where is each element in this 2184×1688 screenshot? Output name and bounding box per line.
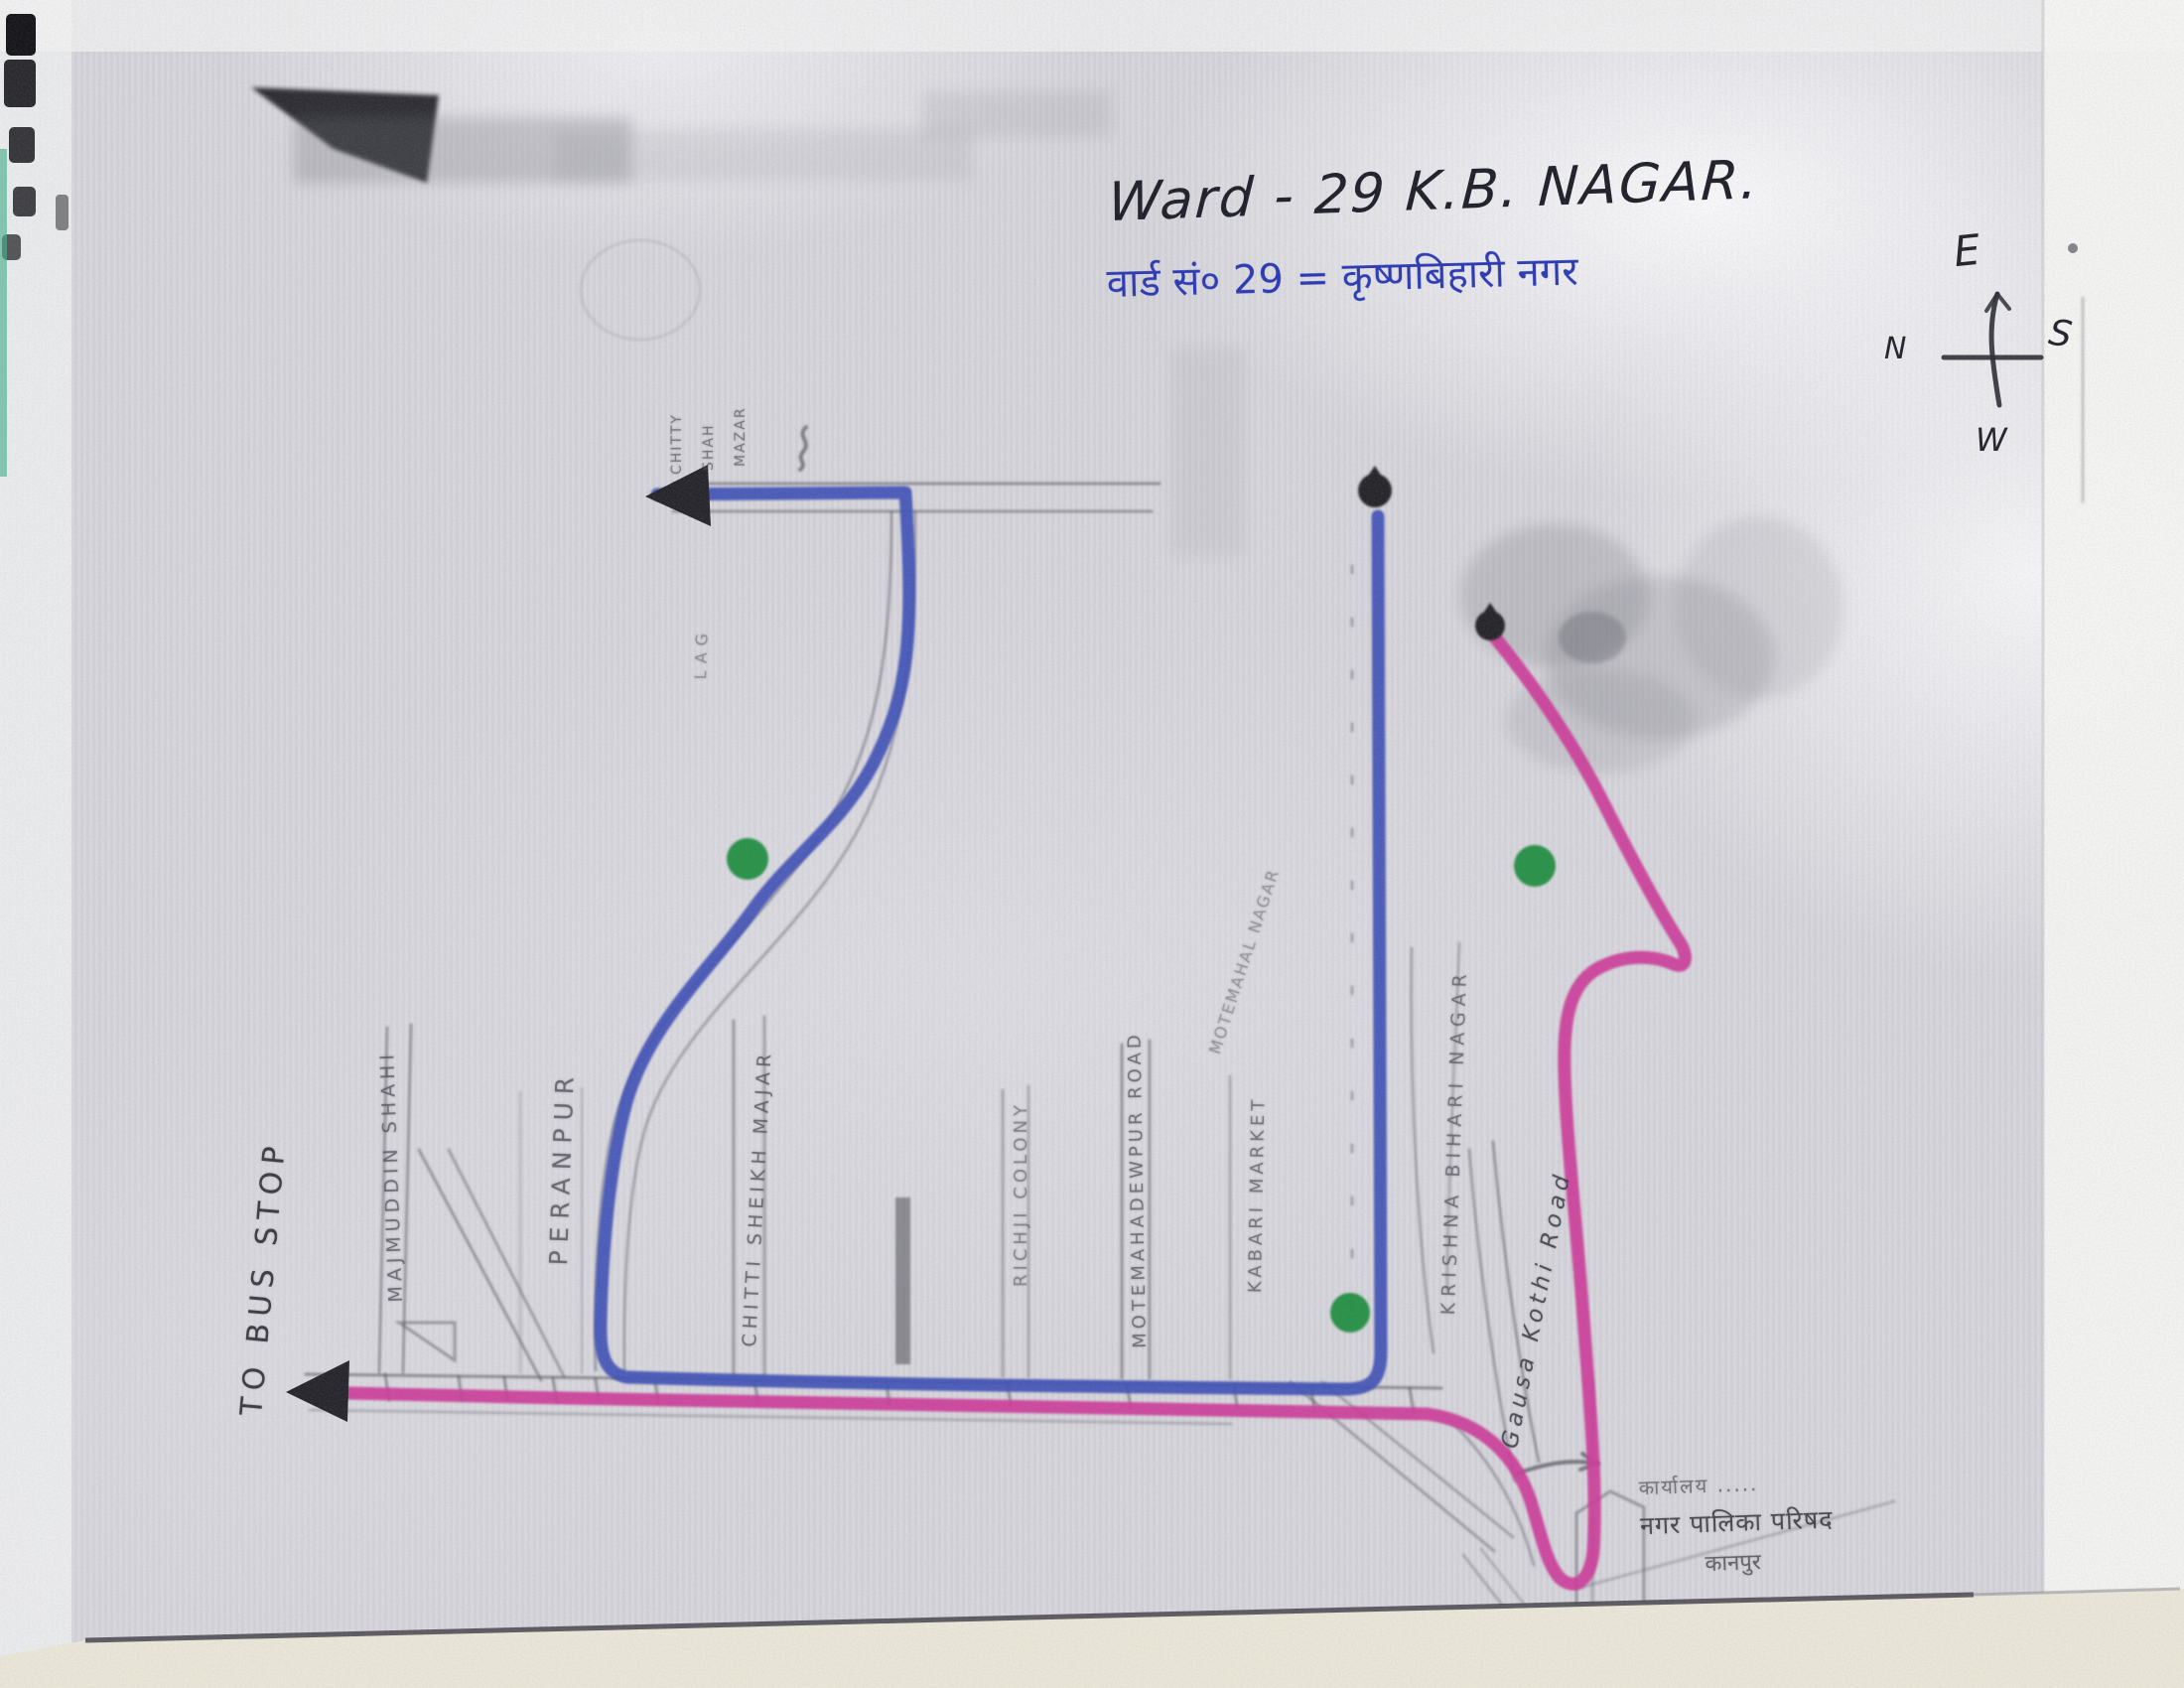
green-marker-2 [1514,845,1556,887]
note-line-2: नगर पालिका परिषद [1639,1496,1997,1543]
compass-north: N [1884,332,1906,366]
desk-area [0,1589,2184,1688]
start-triangles [286,465,711,1422]
green-marker-1 [727,838,768,880]
label-fragment-lag: LAG [691,627,712,680]
pink-start-arrow [286,1360,349,1422]
municipal-note: कार्यालय ..... नगर पालिका परिषद कानपुर [1638,1462,1999,1580]
label-mazar: MAZAR [733,406,749,467]
label-kabari-market: KABARI MARKET [1245,1095,1269,1293]
corner-speck [2068,243,2078,253]
map-canvas [0,0,2184,1688]
top-page-margin [0,0,2184,52]
film-edge-green-strip [0,149,7,477]
right-page-margin [2043,0,2184,1688]
note-arrow [1517,1454,1598,1474]
label-shah: SHAH [701,423,717,471]
compass-cross [1944,294,2041,405]
compass-east: E [1952,225,1983,277]
label-chitty: CHITTY [669,413,685,475]
compass-west: W [1976,421,2007,459]
pink-route [306,637,1685,1584]
scanned-ward-map-page: Ward - 29 K.B. NAGAR. वार्ड सं० 29 = कृष… [0,0,2184,1688]
label-richji-colony: RICHJI COLONY [1011,1101,1031,1287]
dark-street-bar [895,1197,910,1364]
green-marker-3 [1330,1293,1370,1333]
pink-route-end-dot [1475,611,1505,640]
